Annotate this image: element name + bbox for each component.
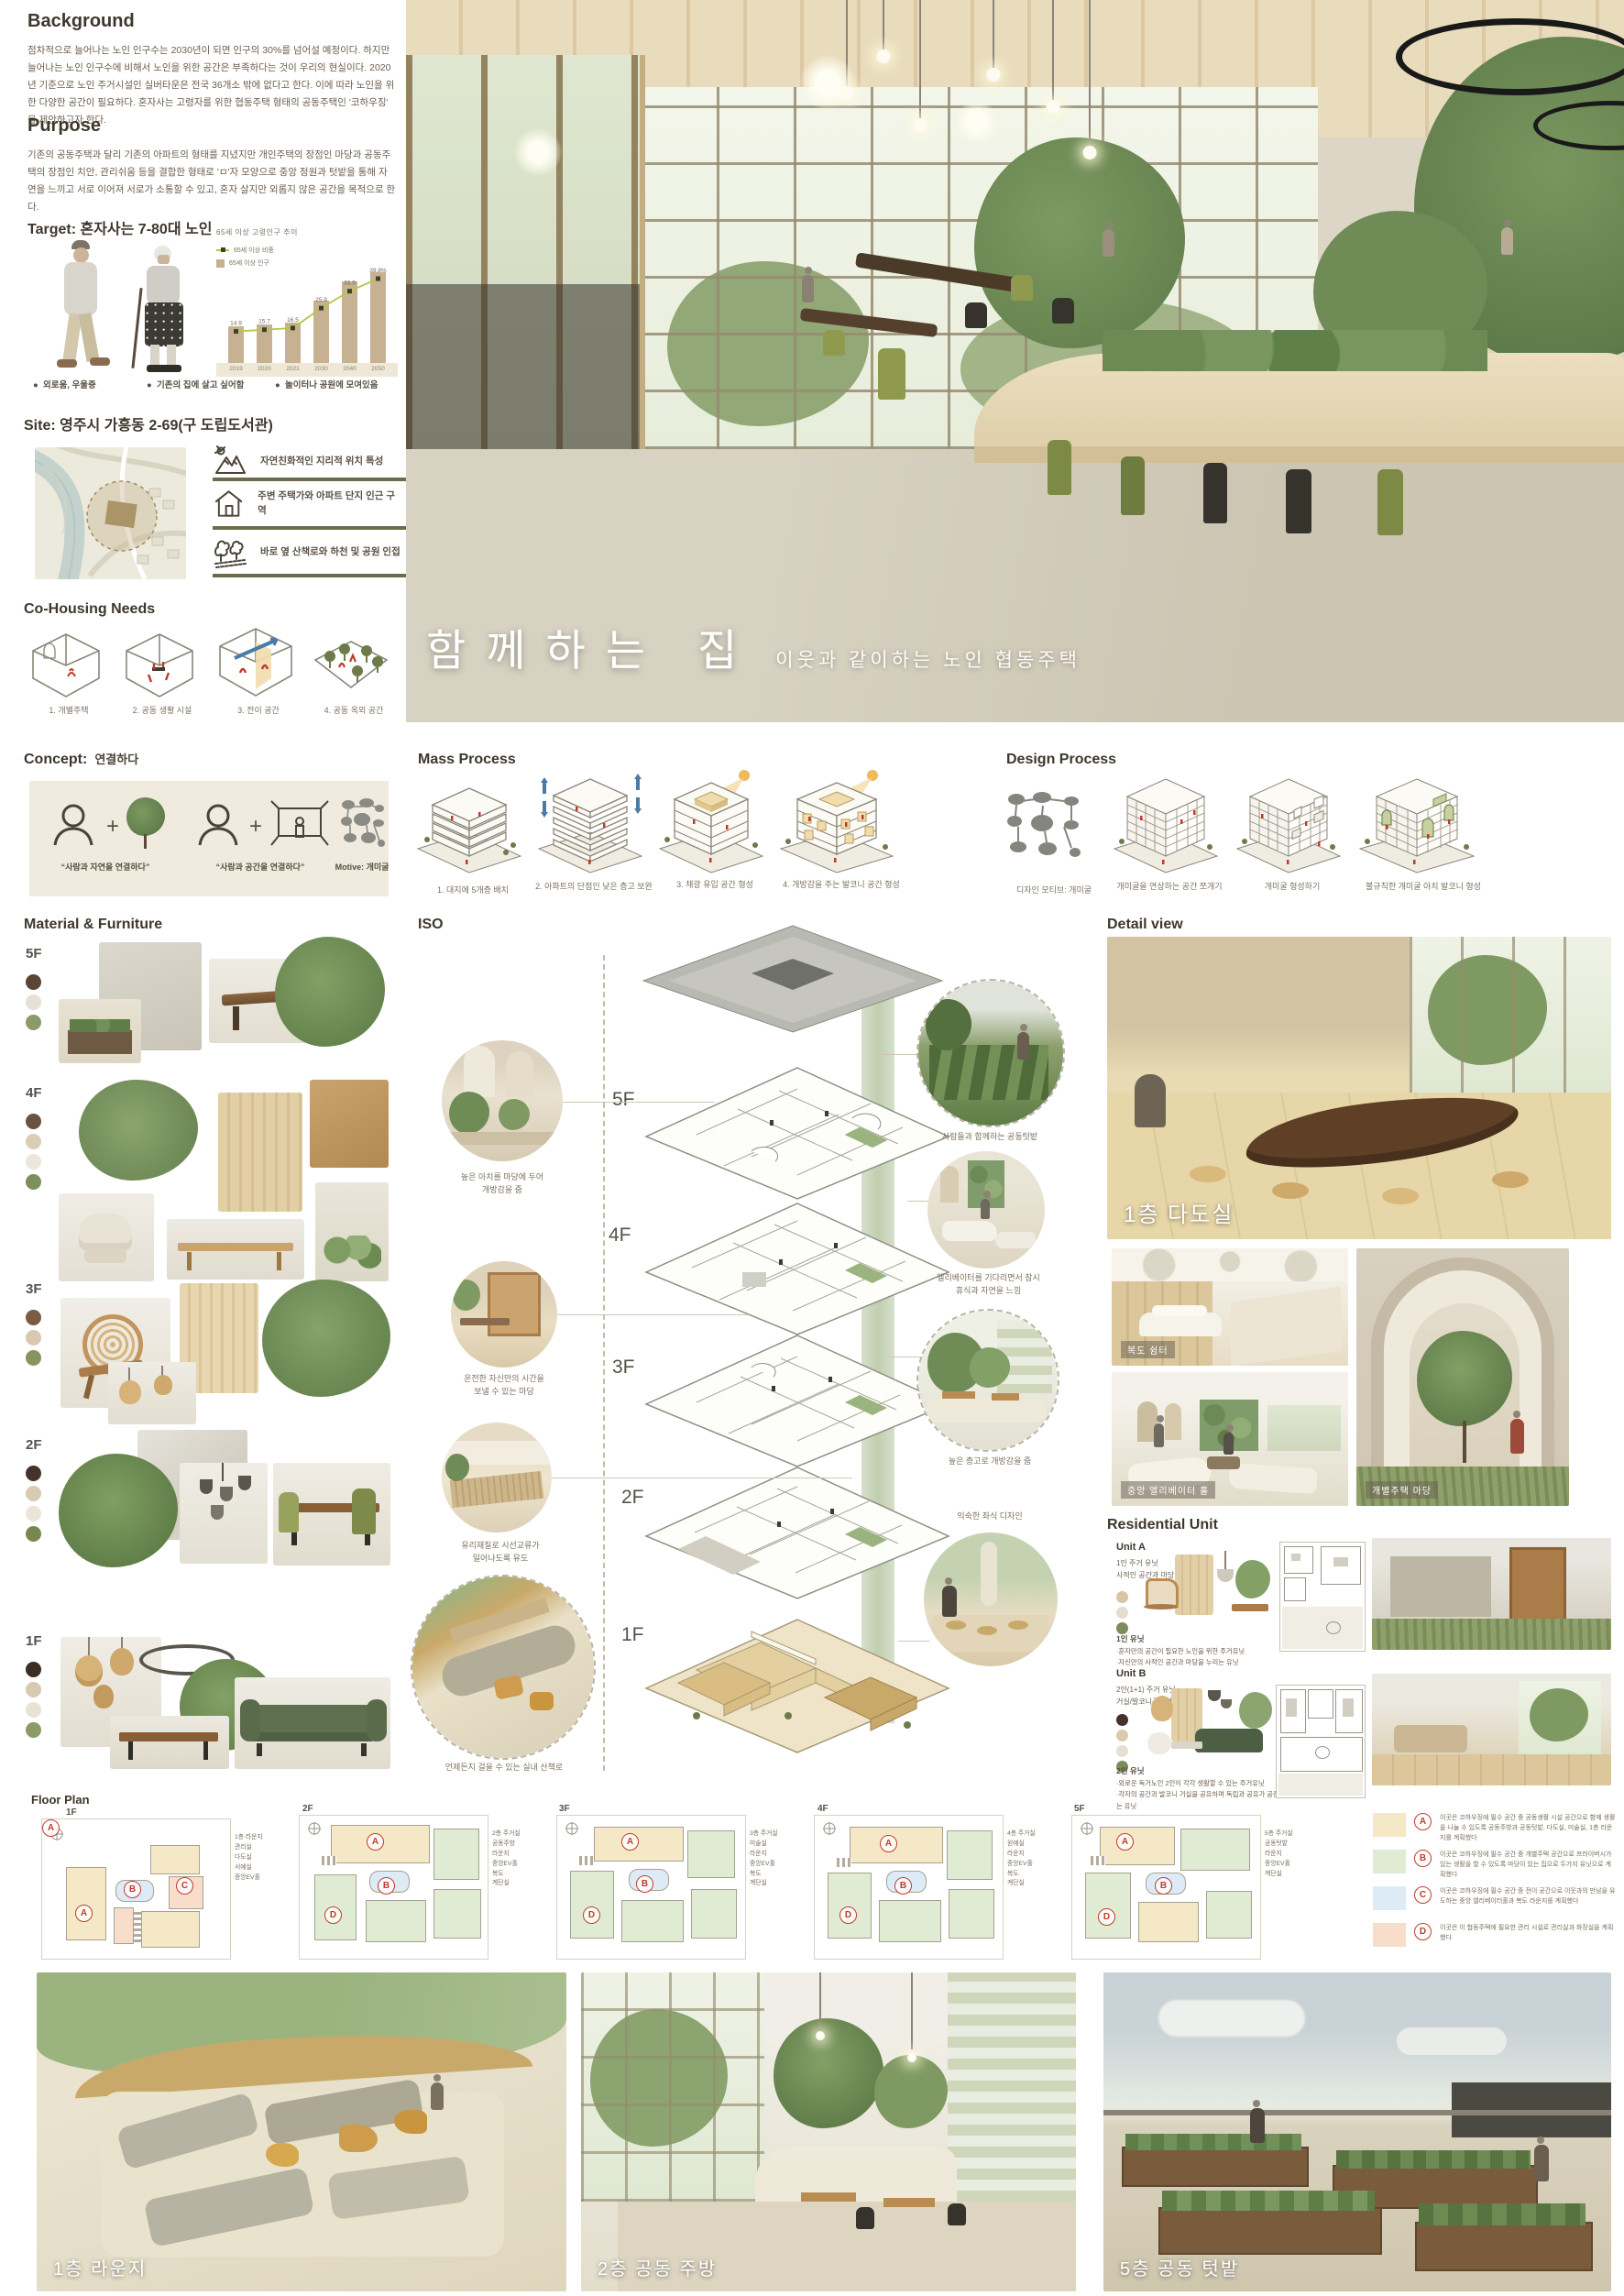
bar-stool [1377, 469, 1403, 535]
svg-text:16.5: 16.5 [287, 317, 299, 324]
legend-badge: C [1414, 1886, 1432, 1904]
color-swatch [26, 1702, 41, 1718]
site-feature-2: 주변 주택가와 아파트 단지 인근 구역 [213, 488, 401, 519]
target-bullet-2: ● 기존의 집에 살고 싶어함 [147, 378, 244, 390]
color-swatch [26, 1154, 41, 1170]
plan-badge: A [621, 1833, 639, 1851]
bar-stool [1203, 463, 1227, 523]
iso-callout-arch-facade [442, 1040, 563, 1161]
private-house-icon [27, 631, 104, 700]
unit-b-photo [1372, 1674, 1611, 1785]
legend-badge: A [1414, 1813, 1432, 1830]
bottom-photo-rooftop-garden: 5층 공동 텃밭 [1103, 1972, 1611, 2291]
color-swatch [26, 1486, 41, 1501]
target-bullet-1: ● 외로움, 우울증 [33, 378, 96, 390]
color-swatch [26, 1350, 41, 1366]
pendant-lamp [993, 0, 994, 69]
background-heading: Background [27, 11, 135, 32]
ant-tunnel-motif [1004, 790, 1088, 869]
mass-step-caption: 3. 채광 유입 공간 형성 [656, 879, 774, 892]
color-swatch [26, 1114, 41, 1129]
chair [1052, 298, 1074, 324]
legend-swatch [1373, 1813, 1406, 1837]
iso-floor-label-4f: 4F [609, 1225, 631, 1247]
plan-badge: D [839, 1906, 857, 1924]
svg-text:14.9: 14.9 [230, 321, 242, 327]
trees-icon [213, 535, 247, 568]
mass-step-1: 1. 대지에 5개층 배치 [414, 775, 532, 897]
color-swatch [26, 1330, 41, 1346]
person-figure [802, 275, 814, 302]
material-swatches-5f [26, 970, 41, 1035]
concept-keyword: 연결하다 [94, 750, 138, 767]
color-swatch [26, 1174, 41, 1190]
plan-legend-row-d: D 이곳은 이 협동주택에 필요한 관리 시설로 관리실과 화장실을 계획했다 [1373, 1923, 1617, 1947]
cane [131, 288, 142, 368]
iso-slab-2f [642, 1463, 953, 1600]
lamp-glow [800, 55, 855, 110]
color-swatch [1116, 1730, 1128, 1741]
design-step-caption: 개미굴을 연상하는 공간 쪼개기 [1111, 881, 1228, 894]
material-tree-3f [262, 1280, 390, 1397]
detail-photo-tea-room: 1층 다도실 [1107, 937, 1611, 1239]
bottom-photo-label: 5층 공동 텃밭 [1120, 2254, 1239, 2280]
callout-connector [550, 1478, 852, 1478]
iso-slab-4f [642, 1199, 953, 1336]
svg-text:39.8%: 39.8% [369, 268, 387, 274]
concept-caption-2: “사람과 공간을 연결하다” [187, 862, 334, 874]
material-photo-armchair [59, 1193, 154, 1281]
plan-badge: D [1098, 1908, 1115, 1926]
unit-b-name: Unit B [1116, 1668, 1146, 1679]
design-step-3: 개미굴 형성하기 [1234, 772, 1351, 894]
plan-label-3f: 3F [559, 1804, 570, 1814]
plan-caption-4f: 4층 주거실 원예실 라운지 중앙EV홀 복도 계단실 [1007, 1829, 1036, 1889]
elderly-woman-illustration [126, 246, 200, 374]
cohousing-heading: Co-Housing Needs [24, 601, 155, 618]
mass-diagram-4 [777, 766, 896, 874]
plan-label-1f: 1F [66, 1807, 77, 1818]
detail-photo-label: 1층 다도실 [1124, 1196, 1234, 1228]
chart-x-ticks: 201920202021203020402050 [222, 366, 392, 372]
mass-diagram-2 [535, 770, 645, 874]
plan-badge: B [124, 1881, 141, 1898]
unit-b-floor-plan [1276, 1685, 1366, 1798]
pendant-lamp [919, 0, 921, 119]
site-map [35, 447, 186, 579]
design-process-heading: Design Process [1006, 752, 1116, 768]
tree-icon [126, 797, 165, 836]
plus-sign: + [249, 814, 262, 840]
color-swatch [26, 1466, 41, 1481]
mass-diagram-3 [656, 766, 766, 874]
unit-b-sub: 2인 유닛 [1116, 1765, 1145, 1776]
person-figure [1103, 229, 1114, 257]
chart-x-tick: 2020 [250, 366, 279, 372]
material-heading: Material & Furniture [24, 917, 162, 933]
svg-text:33.9: 33.9 [344, 280, 356, 287]
north-compass-icon [565, 1821, 579, 1836]
plan-badge: A [42, 1819, 60, 1837]
cohousing-item-4: 4. 공동 옥외 공간 [310, 636, 398, 718]
design-step-2: 개미굴을 연상하는 공간 쪼개기 [1111, 772, 1228, 894]
unit-b-notes: ·외로운 독거노인 2인이 각각 생활할 수 있는 주거유닛 ·각자의 공간과 … [1116, 1778, 1286, 1812]
iso-callout-caption: 익숙한 좌식 디자인 [916, 1511, 1063, 1523]
color-swatch [1116, 1745, 1128, 1757]
material-photo-wood-slats [218, 1093, 302, 1212]
color-swatch [26, 1310, 41, 1325]
plan-caption-3f: 3층 주거실 미술실 라운지 중앙EV홀 복도 계단실 [750, 1829, 778, 1889]
poster-subtitle: 이웃과 같이하는 노인 협동주택 [775, 645, 1081, 678]
callout-connector [555, 1314, 748, 1315]
legend-text: 이곳은 코하우징에 필수 공간 중 개별주택 공간으로 프라이버시가 있는 생활… [1440, 1850, 1617, 1881]
iso-callout-indoor-walkway [411, 1575, 596, 1760]
house-icon [213, 488, 245, 519]
plan-badge: C [176, 1877, 193, 1895]
color-swatch [26, 994, 41, 1010]
iso-floor-label-1f: 1F [621, 1624, 644, 1646]
color-swatch [26, 1506, 41, 1522]
floor-plan-heading: Floor Plan [31, 1793, 90, 1807]
plan-badge: A [75, 1905, 93, 1922]
design-step-4: 불규칙한 개미굴 아치 발코니 형성 [1355, 772, 1492, 894]
hero-title-group: 함께하는 집 이웃과 같이하는 노인 협동주택 [426, 615, 1081, 678]
bar-stool [1048, 440, 1071, 495]
cohousing-item-2: 2. 공동 생활 시설 [121, 631, 203, 718]
color-swatch [1116, 1714, 1128, 1726]
mass-process-heading: Mass Process [418, 752, 516, 768]
plan-badge: B [636, 1875, 653, 1893]
cohousing-item-3: 3. 전이 공간 [214, 625, 302, 718]
material-tree-2f [59, 1454, 178, 1567]
color-swatch [26, 1015, 41, 1030]
hero-left-glazing [406, 55, 645, 449]
residential-heading: Residential Unit [1107, 1517, 1218, 1533]
color-swatch [26, 974, 41, 990]
bar-stool [1121, 456, 1145, 515]
chair [823, 330, 845, 356]
iso-callout-caption: 언제든지 걸을 수 있는 실내 산책로 [403, 1762, 605, 1774]
purpose-body: 기존의 공동주택과 달리 기존의 아파트의 형태를 지녔지만 개인주택의 장점인… [27, 147, 396, 216]
lamp-glow [956, 101, 998, 143]
iso-roof-plate [642, 924, 944, 1034]
material-shrub-4f [79, 1080, 198, 1181]
lamp-glow [514, 128, 562, 176]
iso-callout-private-yard [451, 1261, 557, 1368]
color-swatch [1116, 1591, 1128, 1603]
material-swatches-3f [26, 1305, 41, 1370]
chart-x-tick: 2030 [307, 366, 335, 372]
plan-badge: B [378, 1877, 395, 1895]
legend-text: 이곳은 코하우징에 필수 공간 중 전이 공간으로 이웃과의 만남을 유도하는 … [1440, 1886, 1617, 1906]
material-floor-label-4f: 4F [26, 1085, 42, 1101]
iso-callout-floor-seating [924, 1532, 1058, 1666]
design-step-caption: 디자인 모티브: 개미굴 [1004, 884, 1104, 897]
pendant-lamp [1052, 0, 1054, 101]
mass-step-2: 2. 아파트의 단점인 낮은 층고 보완 [535, 770, 653, 894]
design-step-caption: 불규칙한 개미굴 아치 발코니 형성 [1355, 881, 1492, 894]
iso-callout-caption: 높은 아치를 마당에 두어 개방감을 줌 [433, 1171, 572, 1197]
color-swatch [1116, 1607, 1128, 1619]
transition-space-icon [214, 625, 297, 700]
ring-chandelier-large [1396, 18, 1624, 95]
color-swatch [26, 1682, 41, 1697]
chair [878, 348, 905, 400]
legend-swatch [1373, 1886, 1406, 1910]
unit-b-collage [1144, 1688, 1272, 1762]
concept-caption-3: Motive: 개미굴 [321, 862, 403, 874]
line-legend-marker [216, 249, 229, 251]
chair [1011, 275, 1033, 301]
svg-text:25.9: 25.9 [315, 297, 327, 303]
legend-badge: D [1414, 1923, 1432, 1940]
poster-title: 함께하는 집 [426, 615, 757, 678]
detail-photo-label: 개별주택 마당 [1366, 1481, 1438, 1499]
detail-photo-arch-courtyard: 개별주택 마당 [1356, 1248, 1569, 1506]
hero-render: 함께하는 집 이웃과 같이하는 노인 협동주택 [406, 0, 1624, 722]
unit-a-collage [1144, 1551, 1270, 1631]
chart-line-svg: 14.915.716.525.933.939.8% [222, 268, 392, 363]
iso-callout-rooftop-garden [916, 979, 1065, 1127]
feature-divider [213, 478, 406, 481]
site-heading: Site: 영주시 가흥동 2-69(구 도립도서관) [24, 412, 273, 434]
iso-callout-elevator-lounge [927, 1151, 1045, 1269]
material-photo-low-table [110, 1716, 229, 1769]
bar-legend-marker [216, 259, 225, 268]
legend-badge: B [1414, 1850, 1432, 1867]
detail-photo-corridor: 복도 쉼터 [1112, 1248, 1348, 1366]
color-swatch [26, 1134, 41, 1149]
design-step-caption: 개미굴 형성하기 [1234, 881, 1351, 894]
detail-photo-label: 중앙 엘리베이터 홀 [1121, 1481, 1215, 1499]
target-heading: Target: 혼자사는 7-80대 노인 [27, 216, 212, 238]
hero-floor [406, 431, 1624, 722]
legend-text: 이곳은 코하우징에 필수 공간 중 공동생활 시설 공간으로 함께 생활을 나눌… [1440, 1813, 1617, 1844]
north-compass-icon [1080, 1821, 1094, 1836]
purpose-heading: Purpose [27, 115, 101, 137]
iso-callout-caption: 높은 층고로 개방감을 줌 [916, 1456, 1063, 1468]
material-photo-planter [59, 999, 141, 1063]
bottom-photo-kitchen: 2층 공동 주방 [581, 1972, 1076, 2291]
plan-badge: D [583, 1906, 600, 1924]
plan-caption-5f: 5층 주거실 공동텃밭 라운지 중앙EV홀 계단실 [1265, 1829, 1293, 1879]
chart-plot: 14.915.716.525.933.939.8% [222, 268, 392, 363]
chart-x-tick: 2050 [364, 366, 392, 372]
material-photo-sofa [235, 1677, 390, 1769]
material-floor-label-5f: 5F [26, 946, 42, 961]
design-diagram-3 [1234, 772, 1344, 874]
plan-badge: B [1155, 1877, 1172, 1895]
iso-callout-caption: 엘리베이터를 기다리면서 잠시 휴식과 자연을 느낌 [904, 1272, 1073, 1298]
cohousing-item-1: 1. 개별주택 [27, 631, 110, 718]
detail-photo-label: 복도 쉼터 [1121, 1341, 1175, 1358]
iso-heading: ISO [418, 917, 444, 933]
legend-swatch [1373, 1923, 1406, 1947]
plan-legend-row-c: C 이곳은 코하우징에 필수 공간 중 전이 공간으로 이웃과의 만남을 유도하… [1373, 1886, 1617, 1910]
site-feature-1: 자연친화적인 지리적 위치 특성 [213, 445, 401, 477]
unit-a-swatches [1116, 1587, 1128, 1638]
material-floor-label-1f: 1F [26, 1633, 42, 1649]
north-compass-icon [307, 1821, 322, 1836]
person-figure [1501, 227, 1513, 255]
material-tree-5f [275, 937, 385, 1047]
iso-slab-3f [642, 1331, 953, 1468]
chart-title: 65세 이상 고령인구 추이 [216, 227, 400, 237]
mass-diagram-1 [414, 775, 524, 874]
iso-callout-caption: 사람들과 함께하는 공동텃밭 [907, 1131, 1072, 1144]
plan-caption-2f: 2층 주거실 공동주방 라운지 중앙EV홀 복도 계단실 [492, 1829, 521, 1889]
plan-label-4f: 4F [817, 1804, 828, 1814]
color-swatch [26, 1722, 41, 1738]
material-photo-dining-set [273, 1463, 390, 1565]
material-photo-rattan-lamp [108, 1362, 196, 1424]
tree-trunk [144, 834, 147, 849]
plan-label-5f: 5F [1074, 1804, 1085, 1814]
plan-legend-row-b: B 이곳은 코하우징에 필수 공간 중 개별주택 공간으로 프라이버시가 있는 … [1373, 1850, 1617, 1881]
elderly-man-illustration [48, 240, 112, 373]
callout-connector [561, 1102, 715, 1103]
plus-sign: + [106, 814, 119, 840]
person-icon [194, 801, 242, 849]
design-diagram-2 [1111, 772, 1221, 874]
north-compass-icon [822, 1821, 837, 1836]
feature-divider [213, 526, 406, 530]
unit-a-floor-plan [1279, 1542, 1366, 1652]
material-photo-bench-2 [167, 1219, 304, 1280]
person-icon [49, 801, 97, 849]
mass-step-caption: 2. 아파트의 단점인 낮은 층고 보완 [535, 881, 653, 894]
plan-badge: D [324, 1906, 342, 1924]
chart-x-tick: 2021 [279, 366, 307, 372]
detail-heading: Detail view [1107, 917, 1183, 933]
iso-callout-caption: 온전한 자신만의 시간을 보낼 수 있는 마당 [431, 1373, 577, 1399]
mountain-icon [213, 445, 247, 477]
svg-text:15.7: 15.7 [258, 319, 270, 325]
iso-callout-high-ceiling [916, 1309, 1059, 1452]
iso-axis-dashed-line [603, 955, 605, 1771]
plan-badge: A [880, 1835, 897, 1852]
chart-legend-line: 65세 이상 비중 [216, 246, 400, 255]
material-photo-pendant-cluster [180, 1463, 268, 1564]
plan-badge: B [894, 1877, 912, 1895]
color-swatch [26, 1526, 41, 1542]
material-photo-grass [315, 1182, 389, 1281]
concept-panel: + “사람과 자연을 연결하다” + “사람과 공간을 연결하다” Motive… [29, 781, 389, 896]
target-bullet-3: ● 놀이터나 공원에 모여있음 [275, 378, 378, 390]
legend-text: 이곳은 이 협동주택에 필요한 관리 시설로 관리실과 화장실을 계획했다 [1440, 1923, 1617, 1943]
material-photo-wood-panel [310, 1080, 389, 1168]
chart-x-tick: 2040 [335, 366, 364, 372]
material-swatches-2f [26, 1461, 41, 1546]
bar-stool [1286, 469, 1311, 533]
glazing-dark-frame [406, 284, 640, 449]
site-feature-3: 바로 옆 산책로와 하천 및 공원 인접 [213, 535, 401, 568]
material-floor-label-3f: 3F [26, 1281, 42, 1297]
plan-label-2f: 2F [302, 1804, 313, 1814]
design-step-1: 디자인 모티브: 개미굴 [1004, 790, 1104, 897]
bottom-photo-label: 1층 라운지 [53, 2254, 147, 2280]
iso-callout-glass-corridor [442, 1423, 552, 1532]
concept-heading-row: Concept: 연결하다 [24, 750, 138, 768]
shared-facility-icon [121, 631, 198, 700]
chart-x-tick: 2019 [222, 366, 250, 372]
site-map-drawing [35, 447, 186, 579]
mass-step-caption: 1. 대지에 5개층 배치 [414, 884, 532, 897]
material-swatches-4f [26, 1109, 41, 1194]
plan-badge: A [367, 1833, 384, 1851]
unit-a-photo [1372, 1538, 1611, 1650]
plan-caption-1f: 1층 라운지 관리실 다도실 서예실 중앙EV홀 [235, 1833, 263, 1883]
iso-slab-5f [642, 1063, 953, 1201]
material-swatches-1f [26, 1657, 41, 1742]
plan-legend-row-a: A 이곳은 코하우징에 필수 공간 중 공동생활 시설 공간으로 함께 생활을 … [1373, 1813, 1617, 1844]
unit-a-name: Unit A [1116, 1542, 1146, 1553]
ant-tunnel-image [339, 797, 385, 851]
unit-a-sub: 1인 유닛 [1116, 1633, 1145, 1644]
aging-chart: 65세 이상 고령인구 추이 65세 이상 비중 65세 이상 인구 14.91… [216, 227, 400, 383]
color-swatch [26, 1662, 41, 1677]
outdoor-space-icon [310, 636, 392, 700]
counter-planter-greens [1103, 330, 1487, 371]
chart-legend-bar: 65세 이상 인구 [216, 258, 400, 268]
bottom-photo-lounge: 1층 라운지 [37, 1972, 566, 2291]
iso-floor-label-5f: 5F [612, 1089, 635, 1111]
mass-step-3: 3. 채광 유입 공간 형성 [656, 766, 774, 892]
iso-callout-caption: 유리재질로 시선교류가 일어나도록 유도 [427, 1540, 574, 1565]
concept-caption-1: “사람과 자연을 연결하다” [37, 862, 174, 874]
callout-connector [875, 1054, 919, 1055]
material-floor-label-2f: 2F [26, 1437, 42, 1453]
mass-step-4: 4. 개방감을 주는 발코니 공간 형성 [777, 766, 905, 892]
feature-divider [213, 574, 406, 577]
design-diagram-4 [1355, 772, 1479, 874]
pendant-lamp [883, 0, 884, 50]
bottom-photo-label: 2층 공동 주방 [598, 2254, 717, 2280]
callout-connector [898, 1641, 929, 1642]
plan-badge: A [1116, 1833, 1134, 1851]
legend-swatch [1373, 1850, 1406, 1873]
pendant-lamp [1089, 0, 1091, 147]
unit-a-notes: ·혼자만의 공간이 필요한 노인을 위한 주거유닛 ·자신만의 사적인 공간과 … [1116, 1646, 1281, 1669]
iso-floor-label-2f: 2F [621, 1487, 644, 1509]
concept-heading: Concept: [24, 752, 87, 768]
detail-photo-elevator-hall: 중앙 엘리베이터 홀 [1112, 1372, 1348, 1506]
mass-step-caption: 4. 개방감을 주는 발코니 공간 형성 [777, 879, 905, 892]
presentation-board: 함께하는 집 이웃과 같이하는 노인 협동주택 Background 점차적으로… [0, 0, 1624, 2296]
iso-floor-label-3f: 3F [612, 1357, 635, 1379]
iso-slab-1f [642, 1606, 953, 1762]
chair [965, 302, 987, 328]
space-icon [269, 799, 330, 847]
